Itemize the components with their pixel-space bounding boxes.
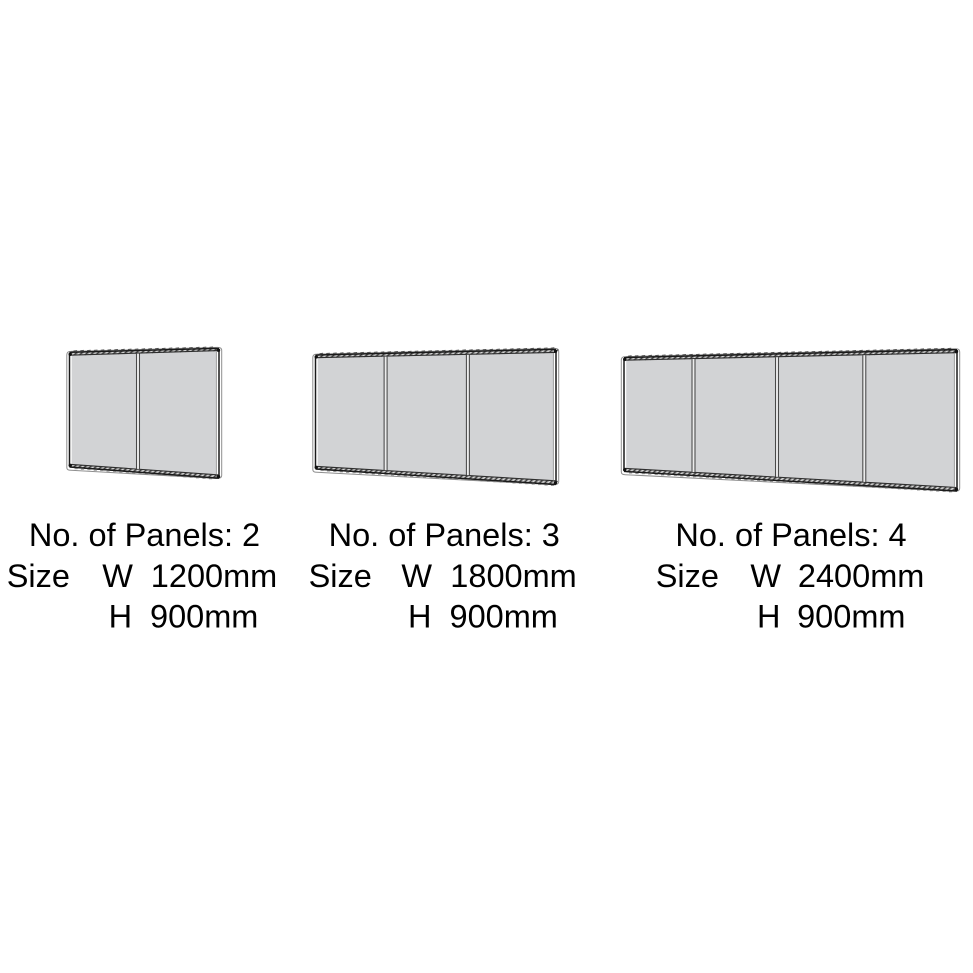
svg-text:Size: Size — [7, 558, 70, 594]
svg-text:900mm: 900mm — [797, 599, 905, 635]
svg-text:900mm: 900mm — [150, 599, 258, 635]
svg-text:1200mm: 1200mm — [151, 558, 277, 594]
svg-text:No. of Panels: 2: No. of Panels: 2 — [29, 517, 260, 553]
svg-text:H: H — [757, 599, 780, 635]
svg-text:W: W — [401, 558, 432, 594]
svg-text:1800mm: 1800mm — [450, 558, 576, 594]
svg-text:Size: Size — [309, 558, 372, 594]
svg-text:No. of Panels: 3: No. of Panels: 3 — [329, 517, 560, 553]
svg-text:H: H — [109, 599, 132, 635]
svg-text:H: H — [408, 599, 431, 635]
svg-text:2400mm: 2400mm — [798, 558, 924, 594]
svg-text:900mm: 900mm — [450, 599, 558, 635]
svg-text:Size: Size — [656, 558, 719, 594]
svg-text:W: W — [102, 558, 133, 594]
svg-text:No. of Panels: 4: No. of Panels: 4 — [675, 517, 906, 553]
svg-text:W: W — [750, 558, 781, 594]
